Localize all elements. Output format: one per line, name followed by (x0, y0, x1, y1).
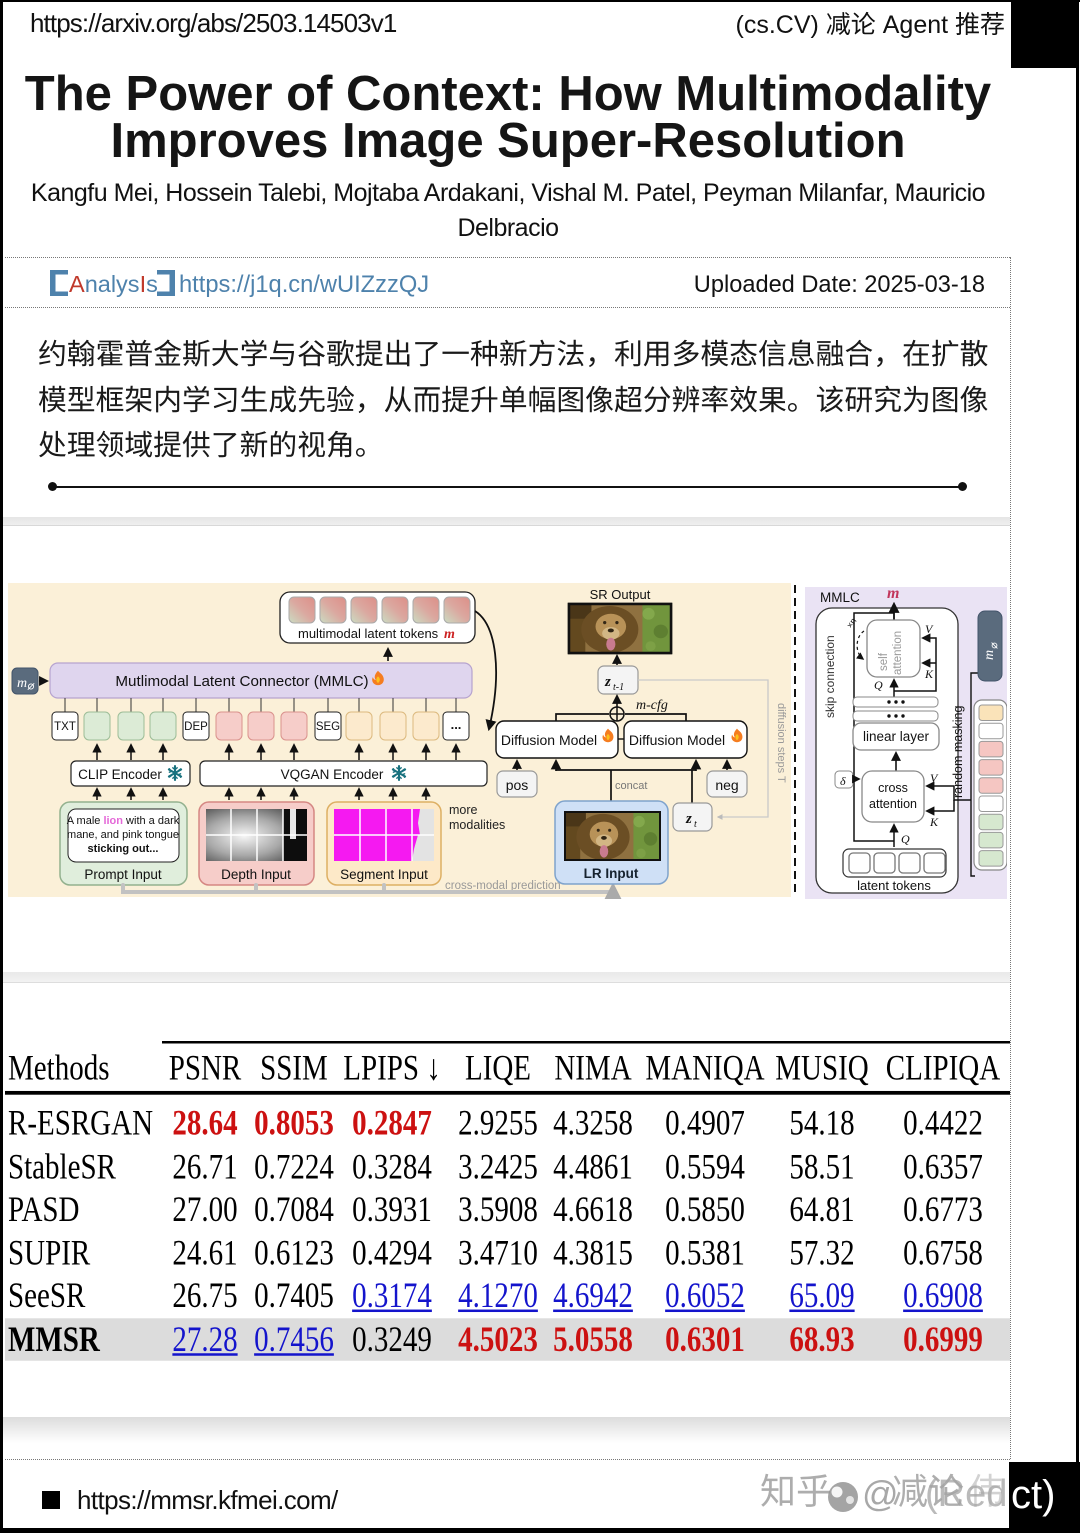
svg-text:A male lion with a dark: A male lion with a dark (67, 815, 180, 827)
svg-text:random masking: random masking (951, 706, 965, 798)
svg-text:z: z (685, 811, 692, 827)
svg-text:cross: cross (878, 781, 908, 795)
svg-text:Depth Input: Depth Input (221, 867, 291, 882)
svg-text:modalities: modalities (449, 818, 505, 832)
svg-text:Diffusion Model: Diffusion Model (501, 732, 597, 748)
svg-text:m-cfg: m-cfg (636, 698, 668, 713)
svg-text:mane, and pink tongue: mane, and pink tongue (67, 829, 179, 841)
svg-text:m: m (444, 627, 455, 642)
svg-text:K: K (929, 815, 939, 829)
svg-text:linear layer: linear layer (863, 729, 930, 744)
svg-text:Q: Q (901, 832, 910, 846)
svg-text:m: m (887, 585, 899, 602)
svg-text:Segment Input: Segment Input (340, 867, 428, 882)
svg-text:skip connection: skip connection (823, 635, 837, 718)
svg-text:m: m (982, 650, 997, 660)
svg-text:Prompt Input: Prompt Input (84, 867, 162, 882)
svg-text:https://j1q.cn/wUIZzzQJ: https://j1q.cn/wUIZzzQJ (179, 272, 429, 298)
svg-text:...: ... (451, 717, 462, 732)
svg-text:z: z (604, 674, 611, 690)
svg-text:(cs.CV): (cs.CV) (736, 11, 826, 39)
svg-text:diffusion steps T: diffusion steps T (775, 703, 787, 783)
svg-text:multimodal latent tokens: multimodal latent tokens (298, 626, 439, 641)
svg-text:LR Input: LR Input (584, 866, 639, 881)
svg-text:neg: neg (715, 777, 738, 793)
svg-text:sticking out...: sticking out... (88, 843, 159, 855)
svg-text:t-1: t-1 (613, 682, 624, 693)
svg-text:@: @ (862, 1473, 899, 1514)
svg-text:VQGAN Encoder: VQGAN Encoder (281, 767, 384, 782)
svg-text:K: K (924, 667, 934, 681)
svg-text:m: m (17, 676, 27, 691)
svg-text:concat: concat (615, 780, 647, 792)
svg-text:Q: Q (874, 678, 883, 692)
svg-text:Diffusion Model: Diffusion Model (629, 732, 725, 748)
svg-text:SEG: SEG (316, 721, 340, 733)
svg-text:δ: δ (840, 774, 846, 788)
svg-text:Mutlimodal Latent Connector (M: Mutlimodal Latent Connector (MMLC) (115, 673, 368, 690)
svg-text:self: self (878, 652, 890, 671)
svg-text:TXT: TXT (54, 721, 76, 733)
svg-text:AnalysIs: AnalysIs (69, 271, 158, 297)
svg-text:latent tokens: latent tokens (857, 878, 931, 893)
svg-text:more: more (449, 803, 478, 817)
svg-text:Uploaded Date: 2025-03-18: Uploaded Date: 2025-03-18 (694, 272, 985, 298)
svg-text:t: t (694, 819, 697, 830)
svg-text:MMLC: MMLC (820, 590, 860, 605)
svg-text:attention: attention (869, 797, 917, 811)
svg-text:attention: attention (892, 631, 904, 675)
svg-text:CLIP Encoder: CLIP Encoder (78, 767, 162, 782)
svg-text:pos: pos (506, 777, 529, 793)
svg-text:Agent: Agent (876, 11, 955, 39)
svg-text:DEP: DEP (184, 721, 208, 733)
svg-text:SR Output: SR Output (590, 587, 651, 602)
